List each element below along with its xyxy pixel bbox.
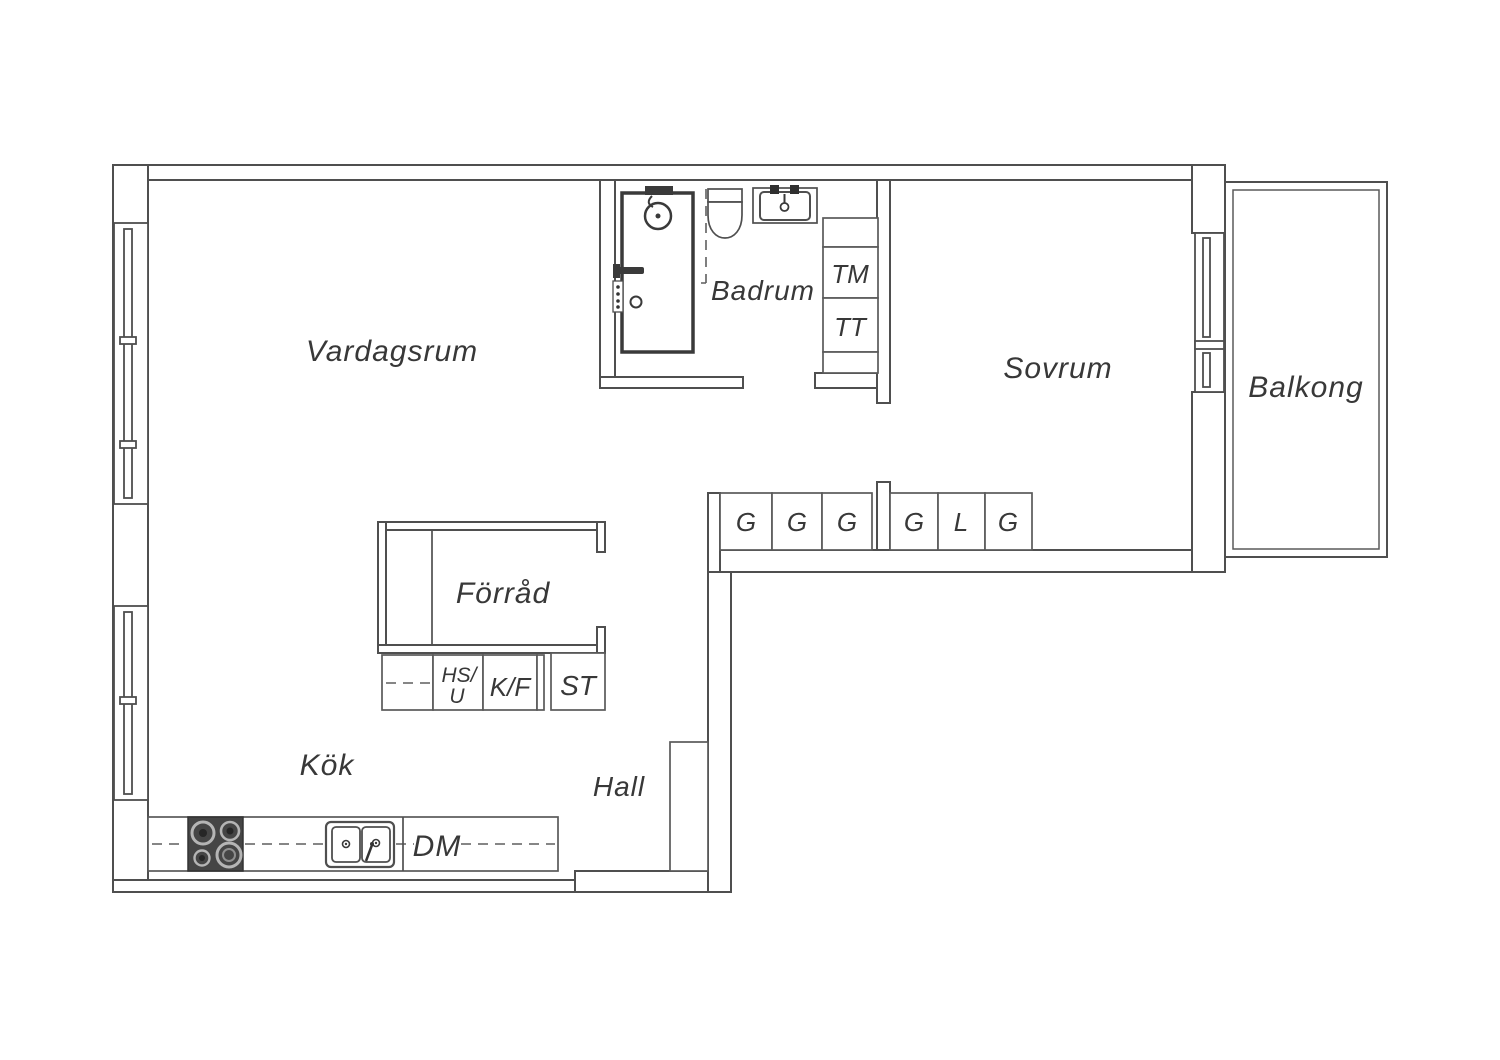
kitchen-counter: DM	[148, 817, 558, 871]
shower-door-handle-icon	[617, 267, 644, 274]
toilet-bowl-icon	[708, 202, 742, 238]
wardrobe-letter: G	[904, 507, 924, 537]
sink-basin-right	[362, 827, 390, 862]
wardrobe-letter: G	[998, 507, 1018, 537]
stove	[188, 817, 243, 871]
label-hs: HS/	[441, 664, 478, 687]
bathroom: TM TT Badrum	[613, 185, 878, 373]
room-label-living-room: Vardagsrum	[306, 335, 478, 368]
faucet-block	[790, 185, 799, 194]
room-label-storage: Förråd	[456, 577, 551, 610]
window-mullion	[120, 337, 136, 344]
wall-hall-east	[708, 572, 731, 892]
storage-room: Förråd	[378, 522, 605, 653]
faucet-icon	[781, 203, 789, 211]
wardrobe-letter: G	[736, 507, 756, 537]
balcony-door-window	[1195, 233, 1224, 392]
hall-niche	[670, 742, 708, 871]
label-washing-machine: TM	[831, 259, 869, 289]
wall-bathroom-south-stub	[815, 373, 878, 388]
burner-center	[199, 855, 205, 861]
wall-south-band	[720, 550, 1225, 572]
window-glazing-lower	[1203, 353, 1210, 387]
floor-plan-canvas: Förråd Balkong	[0, 0, 1500, 1060]
storage-wall-right-bottom	[597, 627, 605, 653]
wall-bedroom-west-stub	[877, 482, 890, 550]
hall: Hall	[593, 742, 708, 871]
label-cleaning-closet: ST	[560, 670, 598, 701]
storage-wall-right-top	[597, 522, 605, 552]
drain-dot	[345, 843, 347, 845]
storage-wall-left	[378, 522, 386, 653]
room-label-hall: Hall	[593, 771, 645, 802]
window-kitchen	[114, 606, 148, 800]
wall-hall-east-upper	[708, 493, 720, 572]
label-dishwasher: DM	[413, 830, 462, 863]
burner-center	[227, 828, 234, 835]
window-glazing	[124, 229, 132, 498]
lock-detail-dot	[616, 292, 620, 296]
room-label-bathroom: Badrum	[711, 275, 815, 306]
bathroom-sink	[753, 185, 817, 223]
window-glazing-upper	[1203, 238, 1210, 337]
wall-bottom-thin	[113, 880, 575, 892]
faucet-block	[770, 185, 779, 194]
shower-head-center	[656, 214, 661, 219]
laundry-cabinets: TM TT	[823, 218, 878, 373]
shower	[613, 186, 693, 352]
wall-top	[113, 165, 1225, 180]
lock-detail-dot	[616, 285, 620, 289]
balcony: Balkong	[1225, 182, 1387, 557]
label-u: U	[449, 685, 465, 708]
wall-right-lower	[1192, 392, 1225, 572]
toilet	[708, 189, 742, 238]
room-label-kitchen: Kök	[300, 749, 356, 782]
lock-detail-dot	[616, 299, 620, 303]
window-mullion	[120, 697, 136, 704]
window-living-room	[114, 223, 148, 504]
toilet-tank	[708, 189, 742, 202]
wardrobe-letter: G	[787, 507, 807, 537]
wardrobe-letter: G	[837, 507, 857, 537]
storage-cabinets: HS/ U K/F ST	[382, 653, 605, 710]
balcony-inner-wall	[1233, 190, 1379, 549]
window-mullion	[1195, 341, 1224, 349]
wall-right-upper	[1192, 165, 1225, 233]
cabinet-box	[823, 352, 878, 373]
label-dryer: TT	[834, 312, 868, 342]
drain-dot	[375, 842, 377, 844]
room-label-bedroom: Sovrum	[1003, 352, 1112, 385]
filler-panel	[537, 655, 544, 710]
floor-plan-page: Förråd Balkong	[0, 0, 1500, 1060]
window-mullion	[120, 441, 136, 448]
cabinet-box	[823, 218, 878, 247]
shower-mixer-bar	[645, 186, 673, 195]
kitchen-sink	[326, 822, 394, 867]
wardrobe-letter: L	[954, 507, 968, 537]
faucet-lever-tip	[370, 842, 374, 846]
lock-detail-dot	[616, 305, 620, 309]
wall-bathroom-south	[600, 377, 743, 388]
storage-wall-bottom	[378, 645, 605, 653]
label-fridge-freezer: K/F	[490, 672, 533, 702]
wall-bedroom-west	[877, 180, 890, 403]
room-label-balcony: Balkong	[1248, 371, 1363, 404]
burner-center	[199, 829, 207, 837]
storage-wall-top	[378, 522, 605, 530]
